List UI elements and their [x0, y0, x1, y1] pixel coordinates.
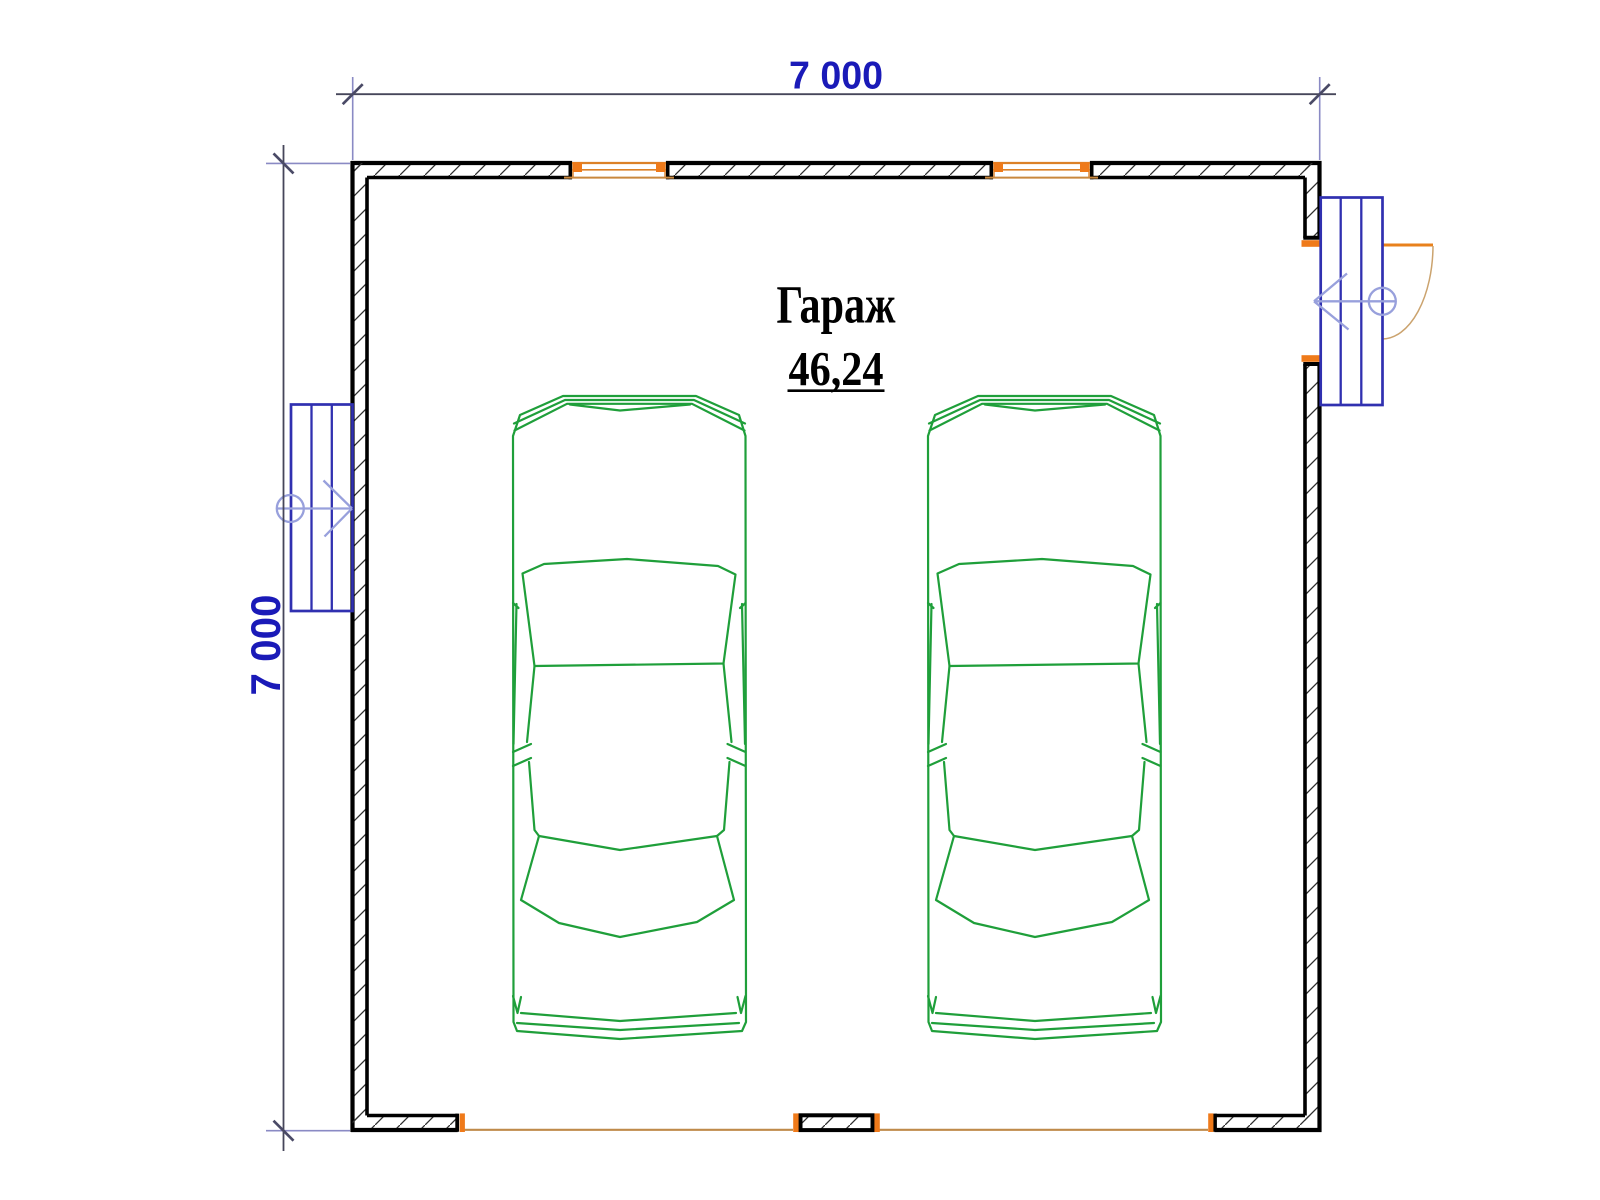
svg-text:7 000: 7 000	[242, 595, 289, 696]
svg-text:7 000: 7 000	[789, 55, 883, 98]
svg-text:46,24: 46,24	[789, 341, 884, 396]
svg-text:Гараж: Гараж	[777, 275, 897, 335]
